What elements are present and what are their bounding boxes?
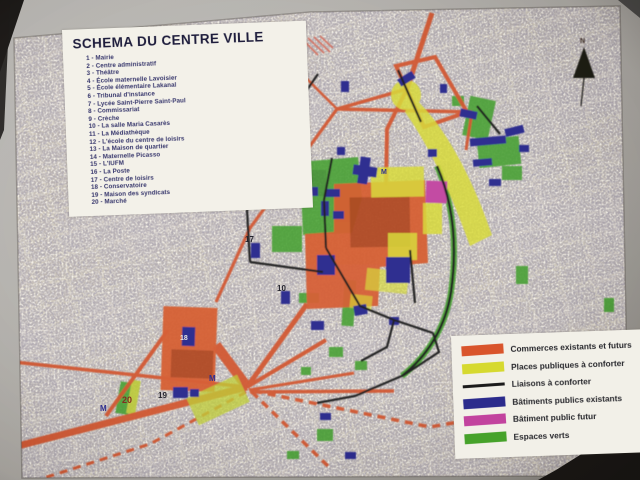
poi-list: 1 - Mairie 2 - Centre administratif 3 - … [73, 47, 305, 207]
legend-row: Bâtiment public futur [464, 409, 640, 425]
legend-label: Places publiques à conforter [511, 357, 625, 371]
legend-swatch [461, 343, 504, 356]
map-legend-box: Commerces existants et futurs Places pub… [451, 329, 640, 459]
legend-row: Bâtiments publics existants [463, 392, 640, 408]
legend-swatch [464, 431, 507, 444]
legend-label: Espaces verts [513, 429, 569, 441]
legend-swatch [464, 413, 507, 426]
legend-row: Commerces existants et futurs [461, 339, 640, 355]
legend-label: Commerces existants et futurs [510, 340, 632, 354]
legend-row: Liaisons à conforter [463, 374, 640, 390]
legend-label: Bâtiment public futur [513, 411, 597, 424]
legend-swatch [463, 396, 506, 409]
photo-of-city-map: N MMM1710192018 SCHEMA DU CENTRE VILLE 1… [0, 0, 640, 480]
legend-row: Espaces verts [464, 427, 640, 443]
legend-swatch [463, 382, 505, 388]
legend-label: Bâtiments publics existants [512, 393, 622, 407]
legend-swatch [462, 361, 505, 374]
legend-label: Liaisons à conforter [512, 376, 592, 389]
legend-row: Places publiques à conforter [462, 357, 640, 373]
map-title-box: SCHEMA DU CENTRE VILLE 1 - Mairie 2 - Ce… [62, 21, 313, 217]
